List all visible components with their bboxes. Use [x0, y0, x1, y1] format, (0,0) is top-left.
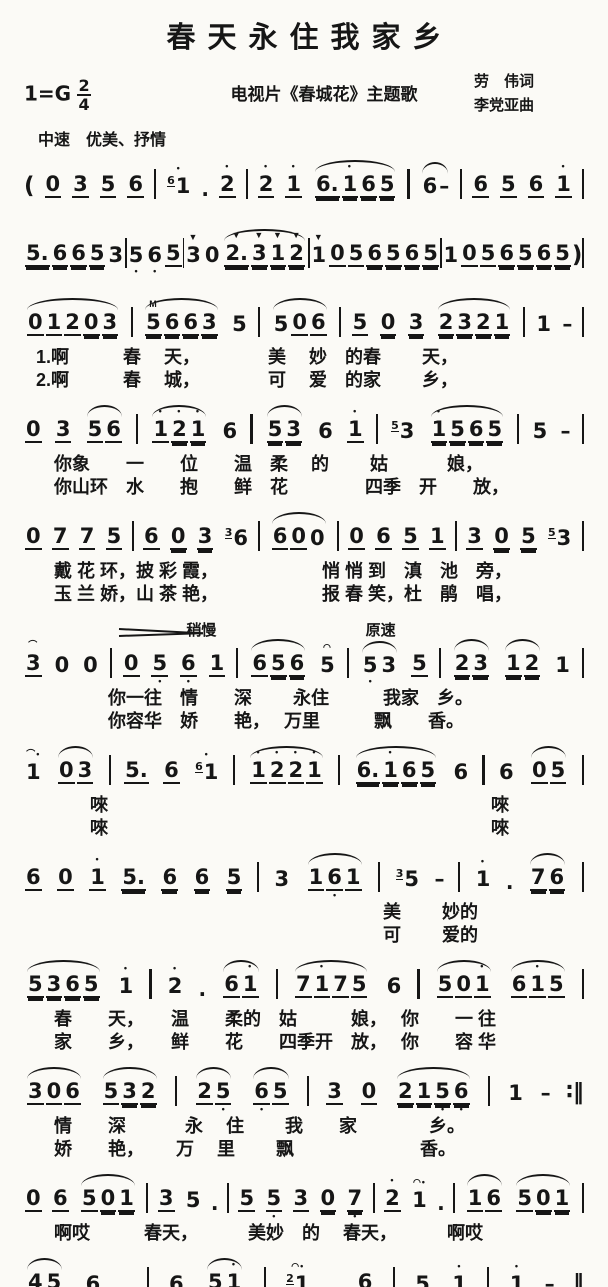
final-barline: ‖ [573, 1269, 584, 1287]
note: •2 [384, 1174, 401, 1222]
note-digit: 2 [524, 652, 541, 677]
note-digit: 1 [285, 173, 302, 198]
note-octave-dot: • [441, 1105, 444, 1115]
note: 3 [293, 1174, 310, 1222]
note-digit: 0 [531, 759, 548, 784]
note: 36 [224, 514, 249, 560]
note: 6 [161, 853, 178, 901]
augmentation-dot: . [506, 873, 514, 891]
augmentation-dot: . [330, 1278, 338, 1287]
note: 6 [360, 160, 377, 208]
barline [582, 307, 584, 337]
composer-credit: 李党亚曲 [474, 94, 584, 118]
slur-group: 50•1 [434, 960, 494, 1008]
note-digit: 0 [54, 654, 71, 677]
note: 6 [64, 1067, 81, 1115]
barline [582, 969, 584, 999]
slur-group: 215•6• [394, 1067, 473, 1115]
barline [257, 862, 259, 892]
note-digit: 5 [266, 1187, 283, 1212]
note-digit: 2 [288, 242, 305, 267]
note-digit: 5 [272, 1080, 289, 1105]
note-digit: 7 [530, 866, 547, 891]
note: 0 [535, 1174, 552, 1222]
phrase-paren: ) [572, 241, 583, 269]
note-digit: 3 [102, 311, 119, 336]
note-octave-dot: • [187, 677, 190, 687]
barline [439, 648, 441, 678]
note-digit: 5 [520, 525, 537, 550]
note: •1 [285, 160, 302, 208]
slur-group: 5•3 [359, 641, 400, 687]
note-digit: 5 [46, 1271, 63, 1287]
note: 5 [348, 229, 365, 277]
note-digit: 1 [509, 1273, 526, 1287]
note: 5 [267, 405, 284, 453]
note-digit: 1 [451, 1273, 468, 1287]
note: 6 [25, 853, 42, 901]
note: 1 [209, 639, 226, 687]
duration-dash: – [560, 419, 570, 443]
lyrics-line: 2.啊 春 城， 可 爱 的家 乡， [24, 369, 584, 392]
note: 6 [168, 1260, 185, 1287]
score-body: (0356•61.•2•2•16.•1656–656•15.66535•6•5▼… [24, 160, 584, 1287]
note: 1 [118, 1174, 135, 1222]
note: 3 [55, 405, 72, 453]
note-digit: 6 [251, 652, 268, 677]
note: •1 [451, 1260, 468, 1287]
note: 6. [315, 160, 340, 208]
note: 2 [524, 639, 541, 687]
note-digit: 36 [224, 527, 249, 550]
slur-group: 6•1 [220, 960, 261, 1008]
note: •1 [475, 855, 492, 901]
note: 5 [437, 960, 454, 1008]
barline [582, 414, 584, 444]
note: 0 [348, 512, 365, 560]
note-digit: 2 [288, 759, 305, 784]
note: 3 [46, 960, 63, 1008]
note: 0 [290, 512, 307, 560]
barline [276, 969, 278, 999]
lyrics-line: 唻 唻 [24, 817, 584, 840]
note: ▼3 [185, 231, 202, 277]
note-digit: 6 [163, 759, 180, 784]
barline [482, 755, 484, 785]
note-octave-dot: • [134, 267, 137, 277]
slur-group: M5663 [142, 298, 221, 346]
note: 5. [121, 853, 146, 901]
barline [175, 1076, 177, 1106]
note-digit: 1 [416, 1080, 433, 1105]
note: 5 [517, 229, 534, 277]
note-digit: 1 [535, 313, 552, 336]
note-digit: 0 [46, 1080, 63, 1105]
note-digit: 6 [164, 311, 181, 336]
note: 6 [386, 962, 403, 1008]
note-ornament: • [257, 746, 261, 759]
note: 3 [72, 160, 89, 208]
note: 0 [320, 1174, 337, 1222]
note-digit: 1 [467, 1187, 484, 1212]
note: •61 [166, 162, 191, 208]
note: ◠•21 [285, 1260, 310, 1287]
note: 5 [516, 1174, 533, 1222]
note-digit: 5 [554, 242, 571, 267]
note-digit: 5 [532, 420, 549, 443]
slur-group: 532 [100, 1067, 160, 1115]
slur-group: 6.•165 [353, 746, 439, 794]
barline [110, 648, 112, 678]
tempo-marking: 中速 优美、抒情 [38, 126, 584, 150]
note-digit: 5 [87, 418, 104, 443]
note-digit: 3 [408, 311, 425, 336]
note-digit: 3 [293, 1187, 310, 1212]
note-digit: 3 [72, 173, 89, 198]
note-ornament: • [320, 960, 324, 973]
note-digit: 5 [151, 652, 168, 677]
note-digit: 3 [285, 418, 302, 443]
note: 6 [404, 229, 421, 277]
note-digit: 6 [194, 866, 211, 891]
note-digit: 5. [121, 866, 146, 891]
note: •61 [194, 748, 219, 794]
note-digit: 6 [549, 866, 566, 891]
note: ⌒3 [25, 639, 42, 687]
note-octave-dot: • [260, 1105, 263, 1115]
note: 1 [467, 1174, 484, 1222]
note: 1 [308, 853, 325, 901]
note-digit: 53 [390, 420, 415, 443]
note-digit: 5 [267, 418, 284, 443]
note-digit: 5 [128, 244, 145, 267]
note: 0 [58, 746, 75, 794]
note-digit: 0 [361, 1080, 378, 1105]
note: 5 [226, 853, 243, 901]
note-digit: 0 [291, 311, 308, 336]
note-digit: 1 [209, 652, 226, 677]
note-digit: 6 [472, 173, 489, 198]
note-digit: 5 [226, 866, 243, 891]
phrase-paren: ( [24, 172, 35, 200]
note-ornament: ▼ [292, 229, 302, 242]
note-digit: 1 [507, 1082, 524, 1105]
note-digit: 2 [219, 173, 236, 198]
note-digit: 5 [352, 311, 369, 336]
note: 5• [128, 231, 145, 277]
note-digit: 2 [140, 1080, 157, 1105]
note: 1 [443, 231, 460, 277]
note: 6 [222, 407, 239, 453]
augmentation-dot: . [201, 180, 209, 198]
note-digit: 6 [485, 1187, 502, 1212]
note: 6 [498, 229, 515, 277]
note-ornament: • [177, 405, 181, 418]
note-digit: 0 [204, 244, 221, 267]
slur-group: 5365 [24, 960, 103, 1008]
note: 5 [520, 512, 537, 560]
slur-group: 25• [193, 1067, 234, 1115]
note-digit: 1 [529, 973, 546, 998]
note-digit: 6 [453, 761, 470, 784]
notation-system: 01203M5663550650323211–1.啊 春 天， 美 妙 的春 天… [24, 298, 584, 392]
slur-group: 7•175 [292, 960, 371, 1008]
note: 1 [345, 853, 362, 901]
note: •1 [474, 960, 491, 1008]
note-digit: 3 [77, 759, 94, 784]
note-digit: 6 [498, 761, 515, 784]
note: 5. [25, 229, 50, 277]
note: 6 [317, 407, 334, 453]
barline [250, 414, 252, 444]
lyrics-line: 情 深 永 住 我 家 乡。 [24, 1115, 584, 1138]
notation-system: 0356•1•2•16536•153•15655– 你象 一 位 温 柔 的 姑… [24, 405, 584, 499]
note-digit: 5 [516, 1187, 533, 1212]
notation-system: ⌒•1035.6•61•1•2•2•16.•1656605 唻 唻 唻 唻 [24, 746, 584, 840]
note: 2 [64, 298, 81, 346]
note-digit: 3 [201, 311, 218, 336]
slur-group: 03 [55, 746, 96, 794]
barline [264, 1267, 266, 1287]
note: 35 [395, 855, 420, 901]
time-signature: 24 [77, 78, 91, 112]
note-digit: 0 [83, 311, 100, 336]
note: 1 [554, 641, 571, 687]
note: 6 [85, 1260, 102, 1287]
note-octave-dot: • [158, 677, 161, 687]
barline [149, 969, 151, 999]
note: 5 [486, 405, 503, 453]
note: 1 [429, 512, 446, 560]
note: 5 [273, 300, 290, 346]
barline [307, 1076, 309, 1106]
note-digit: 0 [25, 1187, 42, 1212]
note-digit: 6 [70, 242, 87, 267]
note-digit: 1 [118, 975, 135, 998]
note-digit: 6 [326, 866, 343, 891]
slur-group: 53 [264, 405, 305, 453]
note-digit: 3 [158, 1187, 175, 1212]
slur-group: 23 [451, 639, 492, 687]
note-digit: 6 [182, 311, 199, 336]
barline [147, 1267, 149, 1287]
note: 5. [124, 746, 149, 794]
note: 5 [554, 229, 571, 277]
note-digit: 5 [207, 1271, 224, 1287]
note-digit: 3 [185, 244, 202, 267]
note-digit: 7 [332, 973, 349, 998]
barline [378, 862, 380, 892]
note: ▼3 [251, 229, 268, 277]
note: 5 [411, 639, 428, 687]
note: •1 [242, 960, 259, 1008]
note-digit: 4 [27, 1271, 44, 1287]
note-digit: 1 [475, 868, 492, 891]
note-digit: 0 [45, 173, 62, 198]
barline [440, 238, 442, 268]
note-digit: 1 [382, 759, 399, 784]
note: 0 [54, 641, 71, 687]
note: 6 [536, 229, 553, 277]
lyrics-line: 玉 兰 娇，山 茶 艳， 报 春 笑，杜 鹃 唱， [24, 583, 584, 606]
note: 0 [82, 641, 99, 687]
note-ornament: • [159, 405, 163, 418]
note-digit: 5 [348, 242, 365, 267]
note: 3 [158, 1174, 175, 1222]
note-digit: 3 [25, 652, 42, 677]
notation-system: 60•15.665316•135–•1.76 美 妙的 可 爱的 [24, 853, 584, 947]
note-digit: 1 [250, 759, 267, 784]
note: 6 [289, 639, 306, 687]
note-digit: 0 [320, 1187, 337, 1212]
note: 5 [100, 160, 117, 208]
note-ornament: • [294, 746, 298, 759]
note: 2 [475, 298, 492, 346]
note: •1 [314, 960, 331, 1008]
note: •1 [306, 746, 323, 794]
barline [393, 1267, 395, 1287]
note-digit: 5 [362, 654, 379, 677]
note-digit: 5 [500, 173, 517, 198]
note: 3 [472, 639, 489, 687]
notation-line: 0356•1•2•16536•153•15655– [24, 405, 584, 453]
note: ▼2 [288, 229, 305, 277]
note: 3 [107, 231, 124, 277]
note: 0 [361, 1067, 378, 1115]
lyrics-line: 你象 一 位 温 柔 的 姑 娘， [24, 453, 584, 476]
note: 5• [434, 1067, 451, 1115]
note-octave-dot: • [272, 1212, 275, 1222]
note-digit: 2 [196, 1080, 213, 1105]
note-digit: 3 [107, 244, 124, 267]
note: 5 [46, 1258, 63, 1287]
note-digit: 3 [197, 525, 214, 550]
barline [308, 238, 310, 268]
note: 1 [535, 300, 552, 346]
note: •1 [555, 160, 572, 208]
grace-note: 2 [286, 1273, 294, 1285]
notation-line: 5365•1•2.6•17•175650•16•15 [24, 960, 584, 1008]
note-ornament: M [149, 298, 158, 311]
note: 6 [468, 405, 485, 453]
note: 5 [185, 1176, 202, 1222]
lyrics-line: 春 天， 温 柔的 姑 娘， 你 一 往 [24, 1008, 584, 1031]
barline [453, 1183, 455, 1213]
note: •2 [171, 405, 188, 453]
note-digit: 6 [289, 652, 306, 677]
note: 6 [182, 298, 199, 346]
note: 5 [103, 1067, 120, 1115]
note-digit: 0 [25, 418, 42, 443]
note: 6 [223, 960, 240, 1008]
note: •2 [219, 160, 236, 208]
note: 0 [329, 229, 346, 277]
note-digit: 5 [165, 242, 182, 267]
note-digit: 6 [453, 1080, 470, 1105]
note: •1 [250, 746, 267, 794]
note-digit: 5 [449, 418, 466, 443]
note-digit: 1 [270, 242, 287, 267]
note-digit: 3 [472, 652, 489, 677]
note: 6 [472, 160, 489, 208]
note-digit: 2 [269, 759, 286, 784]
slur-group: 76 [527, 853, 568, 901]
note-digit: 1 [345, 866, 362, 891]
note: 6• [326, 853, 343, 901]
note: 5• [362, 641, 379, 687]
note: 3 [77, 746, 94, 794]
note: 6 [357, 1258, 374, 1287]
barline [132, 521, 134, 551]
slur-group: 506 [270, 298, 330, 346]
note: 6 [127, 160, 144, 208]
barline [582, 648, 584, 678]
note-digit: 5 [434, 1080, 451, 1105]
time-bottom: 4 [79, 97, 90, 112]
barline [338, 755, 340, 785]
note: 5 [81, 1174, 98, 1222]
note-digit: 3 [121, 1080, 138, 1105]
note-digit: 5. [124, 759, 149, 784]
note-octave-dot: • [369, 677, 372, 687]
note-digit: 6 [468, 418, 485, 443]
note-digit: 5 [411, 652, 428, 677]
note-digit: 2. [224, 242, 249, 267]
note: 3 [456, 298, 473, 346]
note: 53 [390, 407, 415, 453]
barline [582, 862, 584, 892]
barline [582, 238, 584, 268]
note-digit: 6 [317, 420, 334, 443]
note-digit: 6 [253, 1080, 270, 1105]
note-digit: 5 [414, 1273, 431, 1287]
note: 6. [356, 746, 381, 794]
repeat-barline: ∶‖ [566, 1078, 583, 1108]
grace-note: 3 [225, 527, 233, 539]
barline [417, 969, 419, 999]
note-digit: 1 [190, 418, 207, 443]
note-digit: 61 [194, 761, 219, 784]
note: 6 [52, 229, 69, 277]
note: ◠•1 [411, 1176, 428, 1222]
note-ornament: ▼ [273, 229, 283, 242]
note-ornament: • [348, 160, 352, 173]
note-digit: 2 [64, 311, 81, 336]
note: 5 [379, 160, 396, 208]
score-meta: 1=G24 电视片《春城花》主题歌 劳 伟词 李党亚曲 [24, 70, 584, 118]
note-digit: 6 [375, 525, 392, 550]
note-digit: 3 [274, 868, 291, 891]
note: 6 [163, 746, 180, 794]
note: ◠5 [319, 641, 336, 687]
note-digit: 5 [385, 242, 402, 267]
barline [407, 169, 409, 199]
note: 5 [270, 639, 287, 687]
note: 0 [309, 514, 326, 560]
note-digit: 1 [314, 973, 331, 998]
note: 6 [401, 746, 418, 794]
note: 5 [422, 229, 439, 277]
note: 0 [100, 1174, 117, 1222]
note: 5 [272, 1067, 289, 1115]
augmentation-dot: . [211, 1194, 219, 1212]
note-digit: 6 [386, 975, 403, 998]
note-ornament: • [312, 746, 316, 759]
note: 6 [164, 298, 181, 346]
note-digit: 0 [461, 242, 478, 267]
note: •2 [288, 746, 305, 794]
note: 5 [449, 405, 466, 453]
